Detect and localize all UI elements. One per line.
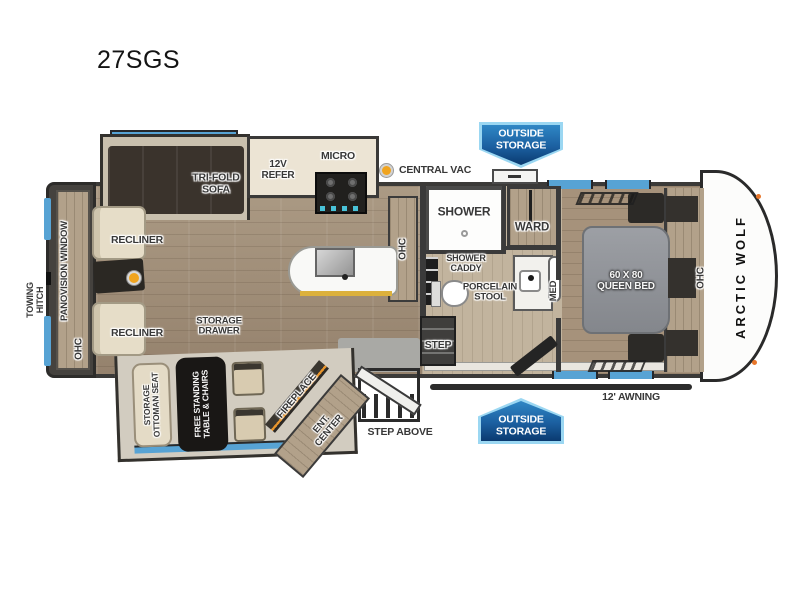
rear-window-strip-bottom: [44, 316, 51, 366]
ohc-rear-label: OHC: [74, 338, 85, 360]
storage-ottoman-label: STORAGE OTTOMAN SEAT: [141, 372, 162, 439]
med-label: MED: [549, 281, 559, 302]
wardrobe-rod: [529, 190, 532, 222]
floorplan-canvas: 27SGS ARCTIC WOLF PANOVISION WINDOW OHC …: [0, 0, 800, 600]
outside-storage-top-label: OUTSIDE STORAGE: [489, 128, 553, 151]
outside-storage-bottom-label: OUTSIDE STORAGE: [489, 414, 553, 437]
ohc-front-label: OHC: [696, 267, 707, 289]
island-accent-strip: [300, 291, 392, 296]
recliner-bottom-label: RECLINER: [111, 328, 163, 340]
brand-name: ARCTIC WOLF: [734, 215, 748, 339]
outside-storage-badge-top: OUTSIDE STORAGE: [479, 122, 563, 168]
marker-light-top: [756, 194, 761, 199]
front-dresser-mid: [668, 258, 696, 298]
range-burner-4: [348, 192, 357, 201]
range-burner-3: [326, 192, 335, 201]
rear-window-strip-top: [44, 198, 51, 240]
range-knobs: [320, 206, 364, 211]
shower-drain: [461, 230, 468, 237]
porcelain-stool-label: PORCELAIN STOOL: [453, 283, 527, 304]
panovision-window-label: PANOVISION WINDOW: [60, 221, 70, 321]
bath-wall-shower-ward: [502, 186, 506, 252]
toilet-tank: [431, 281, 441, 307]
storage-hatch-handle: [508, 175, 521, 178]
awning-bar: [430, 384, 692, 390]
bath-wall-ward-bottom: [506, 246, 560, 250]
outside-storage-badge-bottom: OUTSIDE STORAGE: [478, 398, 564, 444]
micro-label: MICRO: [321, 151, 355, 163]
dining-chair-2: [233, 407, 266, 442]
front-cabinet-top: [666, 196, 698, 222]
roof-vent-bottom: [588, 360, 647, 372]
step-above-label: STEP ABOVE: [367, 427, 432, 439]
front-cabinet-bottom: [666, 330, 698, 356]
sidewall-ledge: [424, 362, 704, 371]
queen-bed-label: 60 X 80 QUEEN BED: [597, 270, 655, 292]
ward-label: WARD: [515, 222, 549, 235]
shower-caddy-label: SHOWER CADDY: [438, 254, 494, 274]
range-burner-1: [326, 178, 335, 187]
nightstand-bottom: [628, 334, 664, 362]
island-sink: [315, 248, 355, 277]
bedroom-window-top-2: [605, 180, 651, 189]
roof-vent-top: [575, 192, 638, 205]
table-lamp: [127, 271, 141, 285]
marker-light-bottom: [752, 360, 757, 365]
vanity-faucet: [528, 275, 534, 281]
towing-hitch-marker: [46, 272, 51, 285]
recliner-top: [92, 206, 146, 260]
towing-hitch-label: TOWING HITCH: [26, 277, 46, 323]
dining-table-label: FREE STANDING TABLE & CHAIRS: [191, 367, 212, 442]
island-faucet: [342, 274, 348, 280]
shower: [425, 186, 505, 254]
recliner-top-label: RECLINER: [111, 235, 163, 247]
ohc-kitchen-label: OHC: [398, 238, 409, 260]
central-vac-label: CENTRAL VAC: [399, 165, 471, 177]
central-vac-indicator: [380, 164, 393, 177]
dining-chair-1: [232, 361, 265, 396]
tri-fold-sofa-label: TRI-FOLD SOFA: [186, 172, 246, 195]
bedroom-wall-top: [556, 186, 561, 280]
storage-drawer-label: STORAGE DRAWER: [190, 317, 248, 338]
wardrobe: [507, 186, 559, 248]
refer-label: 12V REFER: [255, 159, 301, 181]
page-title: 27SGS: [97, 47, 180, 75]
awning-label: 12' AWNING: [602, 392, 660, 404]
step-label: STEP: [425, 340, 452, 352]
shower-label: SHOWER: [438, 205, 491, 218]
range-burner-2: [348, 178, 357, 187]
